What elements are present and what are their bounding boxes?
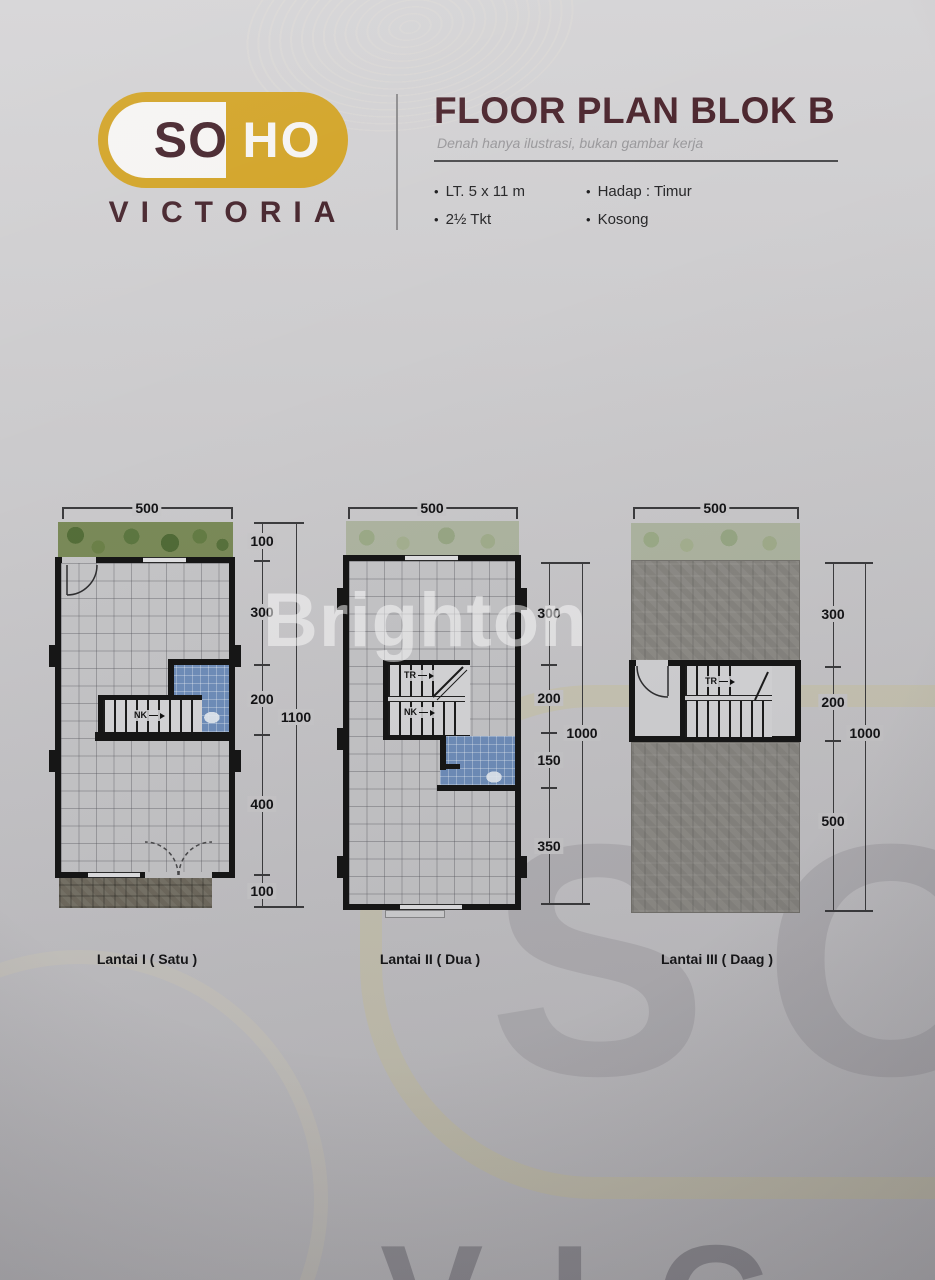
spec-item: •Hadap : Timur	[586, 177, 838, 205]
logo-so-panel: SO	[108, 102, 226, 178]
total-dim: 1100	[278, 709, 314, 725]
spec-item: •2½ Tkt	[434, 205, 586, 233]
plan-name: Lantai II ( Dua )	[380, 951, 480, 967]
door-swing-arcs	[40, 495, 330, 975]
spec-item: •Kosong	[586, 205, 838, 233]
total-dim: 1000	[846, 725, 883, 741]
segment-dim: 200	[818, 694, 847, 710]
segment-dim: 300	[818, 606, 847, 622]
segment-dim: 150	[534, 752, 563, 768]
segment-dim: 400	[247, 796, 276, 812]
page-title: FLOOR PLAN BLOK B	[434, 90, 835, 132]
page-subtitle: Denah hanya ilustrasi, bukan gambar kerj…	[437, 135, 703, 151]
spec-label: LT. 5 x 11 m	[446, 183, 525, 200]
ghost-brand-text: VIC	[380, 1222, 833, 1280]
spec-item: •LT. 5 x 11 m	[434, 177, 586, 205]
segment-dim: 500	[818, 813, 847, 829]
flyer-page: SO VIC SO HO VICTORIA FLOOR PLAN BLOK B …	[0, 0, 935, 1280]
floor-plan-lantai-3: 500 TR 300 200 500 1000 Lantai	[615, 495, 905, 975]
logo-so-text: SO	[154, 111, 228, 169]
segment-dim: 200	[247, 691, 276, 707]
plan-name: Lantai I ( Satu )	[97, 951, 197, 967]
total-dim: 1000	[563, 725, 600, 741]
bullet-icon: •	[434, 184, 439, 199]
spec-label: 2½ Tkt	[446, 211, 492, 228]
spec-label: Hadap : Timur	[598, 183, 692, 200]
brighton-watermark: Brighton	[263, 577, 588, 664]
header-divider	[396, 94, 398, 230]
logo-ho-text: HO	[226, 102, 338, 178]
spec-label: Kosong	[598, 211, 649, 228]
segment-dim: 100	[247, 883, 276, 899]
segment-dim: 100	[247, 533, 276, 549]
ghost-ring-ornament	[0, 950, 328, 1280]
logo-brand-text: VICTORIA	[96, 196, 348, 230]
segment-dim: 350	[534, 838, 563, 854]
segment-dim: 200	[534, 690, 563, 706]
header-rule	[434, 160, 838, 162]
bullet-icon: •	[586, 184, 591, 199]
floor-plan-lantai-1: 500 NK	[40, 495, 330, 975]
bullet-icon: •	[434, 212, 439, 227]
soho-logo: SO HO	[98, 92, 348, 188]
bullet-icon: •	[586, 212, 591, 227]
floor-plan-lantai-2: 500 TR NK	[330, 495, 620, 975]
plan-name: Lantai III ( Daag )	[661, 951, 773, 967]
spec-list: •LT. 5 x 11 m •Hadap : Timur •2½ Tkt •Ko…	[434, 177, 838, 233]
